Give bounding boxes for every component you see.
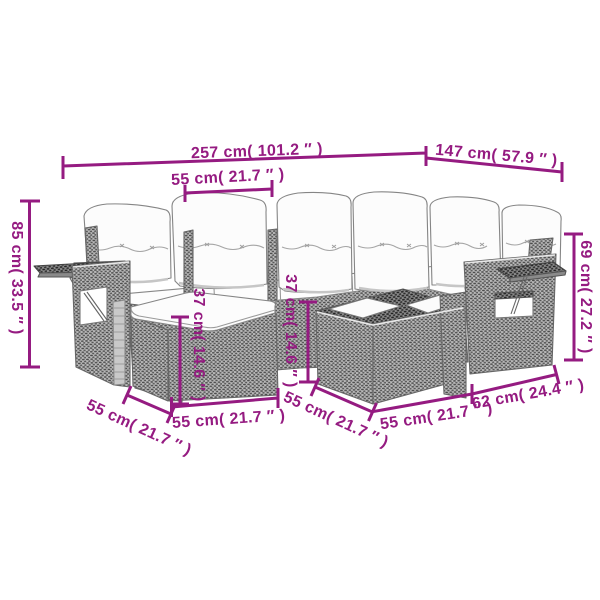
svg-text:37 cm( 14.6 ″ ): 37 cm( 14.6 ″ ) [190,288,207,401]
svg-text:37 cm( 14.6 ″ ): 37 cm( 14.6 ″ ) [282,274,299,387]
svg-text:85 cm( 33.5 ″ ): 85 cm( 33.5 ″ ) [8,221,25,334]
svg-text:69 cm( 27.2 ″ ): 69 cm( 27.2 ″ ) [577,240,594,353]
